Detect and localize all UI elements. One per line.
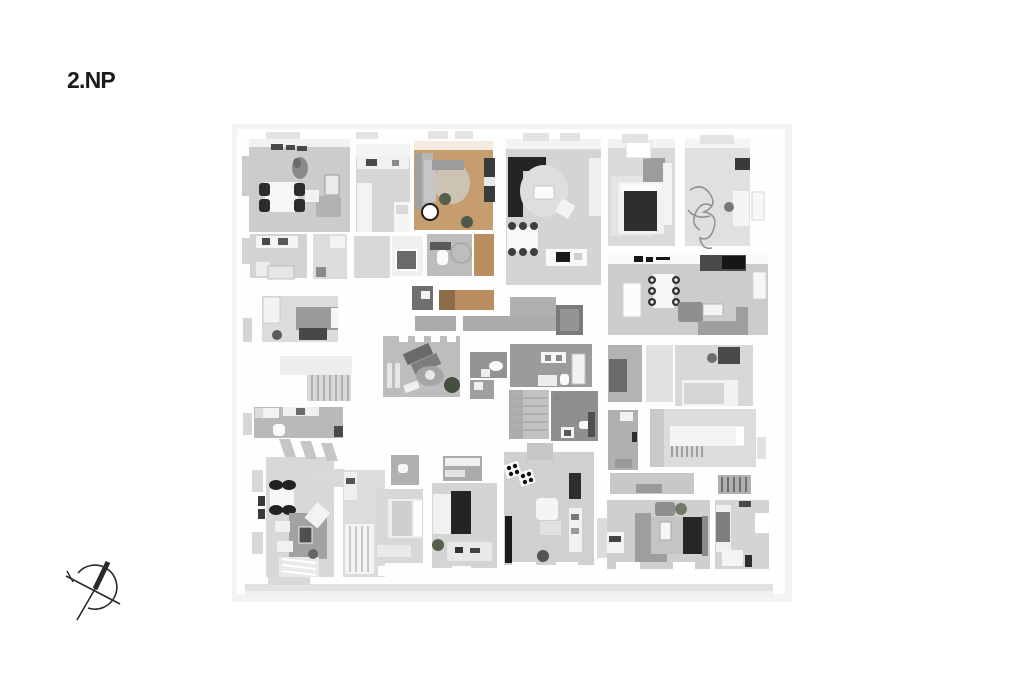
svg-text:2.NP: 2.NP (67, 67, 115, 93)
